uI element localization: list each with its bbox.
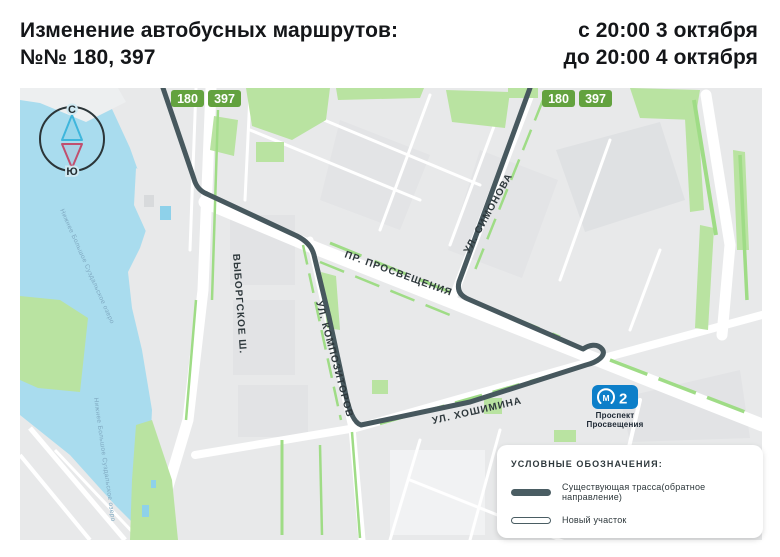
poster-title-line1: Изменение автобусных маршрутов: [20,17,398,44]
poster-dates: с 20:00 3 октября до 20:00 4 октября [563,17,758,71]
poster-title: Изменение автобусных маршрутов: №№ 180, … [20,17,398,71]
poster-title-line2: №№ 180, 397 [20,44,398,71]
legend-new-label: Новый участок [562,515,627,525]
metro-station-name-line1: Проспект [596,411,635,420]
compass-north-label: С [68,104,76,116]
compass-south-label: Ю [66,166,77,178]
metro-logo-letter: М [602,393,609,403]
poster-date-line1: с 20:00 3 октября [563,17,758,44]
metro-station: М 2 Проспект Просвещения [587,385,644,429]
metro-station-name-line2: Просвещения [587,420,644,429]
legend-existing-label: Существующая трасса(обратное направление… [562,482,763,502]
badge-180-right-label: 180 [548,92,569,106]
legend-box: УСЛОВНЫЕ ОБОЗНАЧЕНИЯ: Существующая трасс… [497,445,763,538]
badge-397-right-label: 397 [585,92,606,106]
legend-row-existing: Существующая трасса(обратное направление… [511,482,763,502]
legend-row-new: Новый участок [511,515,763,525]
metro-line-number: 2 [619,391,627,408]
poster-date-line2: до 20:00 4 октября [563,44,758,71]
badge-397-left-label: 397 [214,92,235,106]
legend-new-swatch [511,517,551,524]
legend-existing-swatch [511,489,551,496]
legend-title: УСЛОВНЫЕ ОБОЗНАЧЕНИЯ: [511,459,763,469]
small-pond [160,206,171,220]
poster-page: Изменение автобусных маршрутов: №№ 180, … [0,0,780,557]
badge-180-left-label: 180 [177,92,198,106]
